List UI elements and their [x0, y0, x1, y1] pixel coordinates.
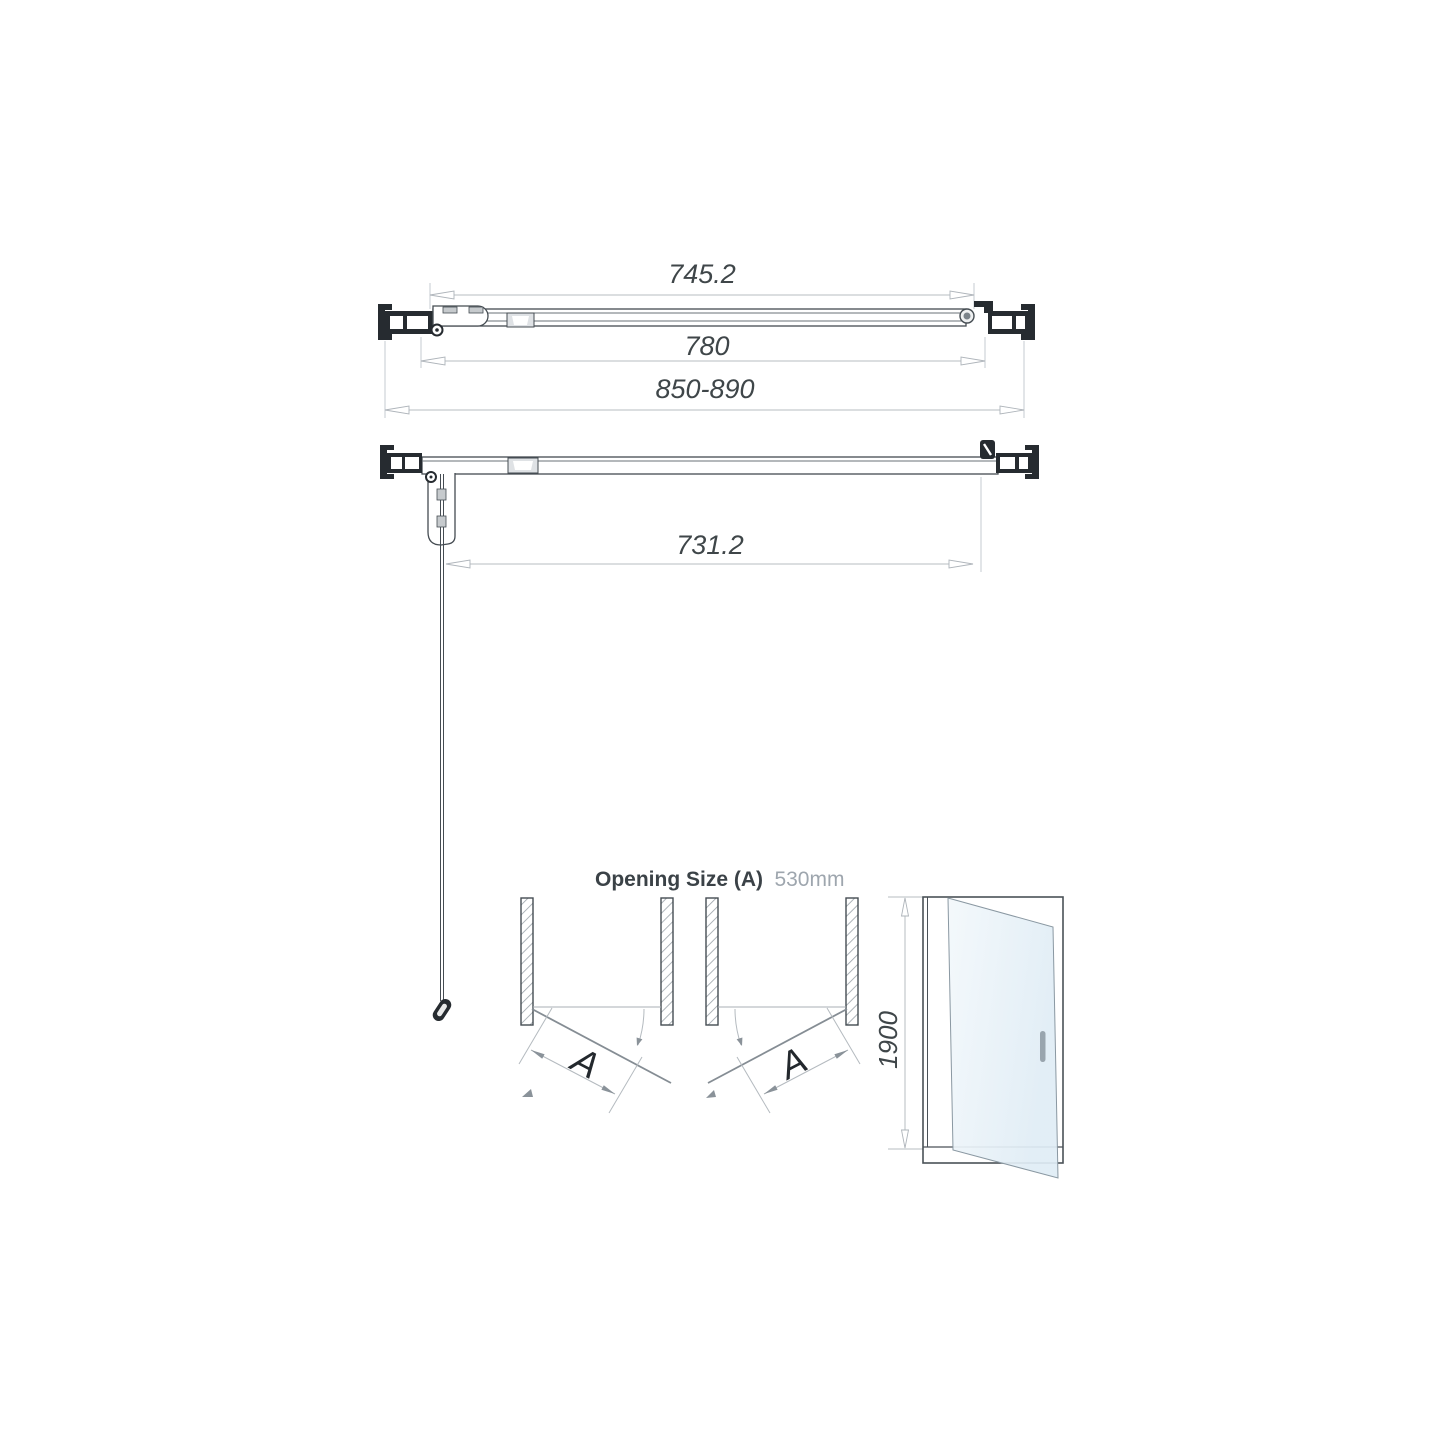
pivot-hook-right — [980, 440, 995, 459]
wall-pillar — [846, 898, 858, 1025]
dim-731-label: 731.2 — [676, 530, 744, 560]
wall-pillar — [661, 898, 673, 1025]
opening-size-label: Opening Size (A) — [595, 868, 763, 891]
door-glass-section — [433, 309, 966, 327]
technical-drawing-canvas: 745.2 780 850-890 — [0, 0, 1445, 1445]
door-handle — [1040, 1031, 1046, 1062]
dim-850-890-label: 850-890 — [655, 374, 754, 404]
wall-pillar — [706, 898, 718, 1025]
dim-780-label: 780 — [684, 331, 729, 361]
opening-size-caption: Opening Size (A) 530mm — [595, 868, 844, 891]
dim-745-label: 745.2 — [668, 259, 736, 289]
header-bar — [422, 457, 998, 474]
drawing-background — [0, 0, 1445, 1445]
wall-pillar — [521, 898, 533, 1025]
opening-size-value: 530mm — [774, 868, 844, 891]
elevation-height-label: 1900 — [873, 1011, 903, 1069]
hinge-bracket-vertical — [428, 473, 455, 545]
